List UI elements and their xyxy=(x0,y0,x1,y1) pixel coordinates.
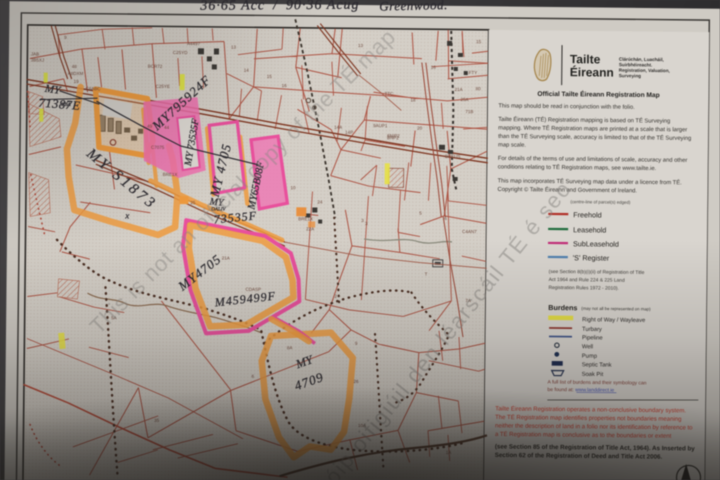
svg-text:15: 15 xyxy=(476,39,482,44)
svg-text:18: 18 xyxy=(410,98,416,103)
svg-text:BNP2: BNP2 xyxy=(387,135,399,140)
svg-text:71B: 71B xyxy=(465,109,473,114)
svg-text:25A: 25A xyxy=(460,97,468,102)
svg-text:TTC: TTC xyxy=(385,91,395,96)
svg-text:14P: 14P xyxy=(345,130,353,135)
svg-text:20: 20 xyxy=(417,126,423,131)
svg-text:Freehold: Freehold xyxy=(573,210,601,219)
svg-text:C4AN7: C4AN7 xyxy=(462,229,477,234)
svg-text:BREUS: BREUS xyxy=(445,154,461,159)
svg-text:Éireann: Éireann xyxy=(570,64,614,79)
svg-text:16: 16 xyxy=(431,65,437,70)
svg-text:14A: 14A xyxy=(334,125,342,130)
svg-text:Suirbhéireacht.: Suirbhéireacht. xyxy=(619,62,653,67)
svg-text:Surveying: Surveying xyxy=(619,73,641,78)
svg-text:Leasehold: Leasehold xyxy=(573,225,606,234)
svg-text:Greenwood.: Greenwood. xyxy=(379,0,448,14)
svg-text:(centre-line of parcel(s) edge: (centre-line of parcel(s) edged) xyxy=(570,199,631,205)
svg-text:FTY: FTY xyxy=(469,70,478,75)
svg-text:9AUP1: 9AUP1 xyxy=(373,123,388,128)
svg-text:map scale.: map scale. xyxy=(498,142,526,148)
svg-text:80: 80 xyxy=(476,86,482,91)
svg-text:21A: 21A xyxy=(455,87,463,92)
